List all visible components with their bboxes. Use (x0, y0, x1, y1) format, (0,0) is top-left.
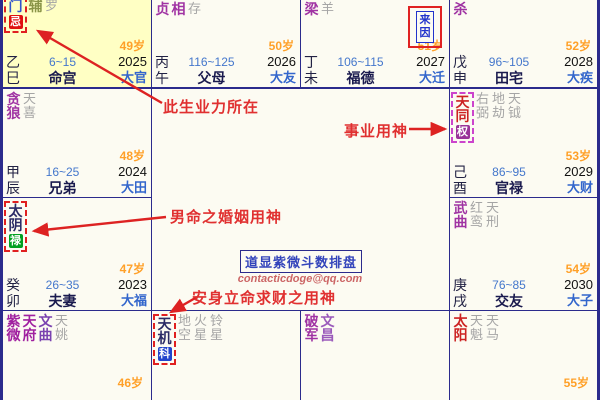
cell-meta: 47岁 癸 26~35 2023 卯 夫妻 大福 (6, 260, 147, 309)
star-name: 天刑 (485, 201, 500, 229)
age-range: 6~15 (24, 54, 101, 70)
transformation-badge: 权 (456, 125, 470, 139)
laiyin-badge: 来因 (416, 11, 434, 43)
decade-palace: 大福 (101, 293, 147, 309)
year: 2023 (101, 277, 147, 293)
star-name: 文昌 (320, 314, 335, 342)
star-group: 杀 (453, 2, 468, 16)
star-name: 天府 (22, 314, 37, 342)
star-group: 梁羊 (304, 2, 335, 16)
age-label: 53岁 (453, 147, 593, 164)
palace-cell-shen-tianzhai: 杀 52岁 戊 96~105 2028 申 田宅 大疾 (449, 0, 598, 88)
age-range: 106~115 (322, 54, 399, 70)
branch: 卯 (6, 293, 24, 309)
star-group: 门忌辅罗 (6, 0, 59, 33)
palace-cell-chou: 天机科地空火星铃星 (151, 310, 301, 400)
age-label: 52岁 (453, 37, 593, 54)
year: 2027 (399, 54, 445, 70)
palace-name: 田宅 (471, 70, 547, 86)
star-name: 武曲 (453, 201, 468, 229)
palace-cell-wu-fumu: 贞相存 50岁 丙 116~125 2026 午 父母 大友 (151, 0, 301, 88)
palace-cell-yin: 紫微天府文曲天姚 46岁 (2, 310, 152, 400)
star-name: 天马 (485, 314, 500, 342)
age-range: 96~105 (471, 54, 547, 70)
star-name: 相 (171, 2, 186, 16)
highlight-dashed-box: 太阴禄 (4, 201, 27, 252)
annotation-career: 事业用神 (344, 120, 408, 141)
palace-name: 命宫 (24, 70, 101, 86)
annotation-karma: 此生业力所在 (163, 96, 259, 117)
watermark-box: 道显紫微斗数排盘 (240, 250, 362, 273)
star-group: 天同权右弼地劫天钺 (453, 92, 522, 143)
star-group: 紫微天府文曲天姚 (6, 314, 69, 342)
stem: 丁 (304, 54, 322, 70)
stem: 甲 (6, 164, 24, 180)
star-group: 天机科地空火星铃星 (155, 314, 224, 365)
palace-name: 福德 (322, 70, 399, 86)
age-label: 47岁 (6, 260, 147, 277)
age-range: 16~25 (24, 164, 101, 180)
cell-meta: 48岁 甲 16~25 2024 辰 兄弟 大田 (6, 147, 147, 196)
annotation-wealth: 安身立命求财之用神 (192, 287, 336, 308)
cell-meta: 52岁 戊 96~105 2028 申 田宅 大疾 (453, 37, 593, 86)
chart-left-border (0, 0, 2, 400)
star-name: 贞 (155, 2, 170, 16)
palace-cell-xu-jiaoyou: 武曲红鸾天刑 54岁 庚 76~85 2030 戌 交友 大子 (449, 197, 598, 311)
palace-cell-chen-xiongdi: 贪狼天喜 48岁 甲 16~25 2024 辰 兄弟 大田 (2, 88, 152, 198)
cell-meta: 50岁 丙 116~125 2026 午 父母 大友 (155, 37, 296, 86)
ziwei-chart: 门忌辅罗 49岁 乙 6~15 2025 巳 命宫 大官 贞相存 50岁 丙 1… (0, 0, 600, 400)
highlight-dashed-box: 天机科 (153, 314, 176, 365)
cell-meta: 49岁 乙 6~15 2025 巳 命宫 大官 (6, 37, 147, 86)
age-label: 49岁 (6, 37, 147, 54)
star-name: 天钺 (507, 92, 522, 120)
star-name: 火星 (193, 314, 208, 342)
annotation-marriage: 男命之婚姻用神 (170, 206, 282, 227)
year: 2028 (547, 54, 593, 70)
star-name: 天姚 (54, 314, 69, 342)
stem: 乙 (6, 54, 24, 70)
cell-meta: 54岁 庚 76~85 2030 戌 交友 大子 (453, 260, 593, 309)
stem: 癸 (6, 277, 24, 293)
decade-palace: 大田 (101, 180, 147, 196)
palace-name: 兄弟 (24, 180, 101, 196)
transformation-badge: 禄 (9, 234, 23, 248)
age-range: 86~95 (471, 164, 547, 180)
palace-cell-wei-fude: 梁羊 来因 51岁 丁 106~115 2027 未 福德 大迁 (300, 0, 450, 88)
branch: 午 (155, 70, 173, 86)
star-group: 太阴禄 (6, 201, 27, 252)
star-name: 红鸾 (469, 201, 484, 229)
highlight-dashed-box: 天同权 (451, 92, 474, 143)
star-name: 铃星 (209, 314, 224, 342)
palace-cell-zi: 破军文昌 (300, 310, 450, 400)
age-label: 50岁 (155, 37, 296, 54)
cell-meta: 53岁 己 86~95 2029 酉 官禄 大财 (453, 147, 593, 196)
branch: 申 (453, 70, 471, 86)
star-name: 文曲 (38, 314, 53, 342)
palace-cell-hai: 太阳天魁天马 55岁 (449, 310, 598, 400)
age-range: 76~85 (471, 277, 547, 293)
branch: 辰 (6, 180, 24, 196)
star-name: 存 (187, 2, 202, 16)
star-name: 罗 (44, 0, 59, 13)
age-range: 116~125 (173, 54, 250, 70)
palace-name: 官禄 (471, 180, 547, 196)
age-label: 46岁 (118, 374, 145, 391)
palace-name: 交友 (471, 293, 547, 309)
star-name: 辅 (28, 0, 43, 13)
year: 2029 (547, 164, 593, 180)
star-name: 羊 (320, 2, 335, 16)
star-name: 地空 (177, 314, 192, 342)
palace-cell-si-ming: 门忌辅罗 49岁 乙 6~15 2025 巳 命宫 大官 (2, 0, 152, 88)
decade-palace: 大疾 (547, 70, 593, 86)
decade-palace: 大迁 (399, 70, 445, 86)
branch: 未 (304, 70, 322, 86)
decade-palace: 大财 (547, 180, 593, 196)
decade-palace: 大友 (250, 70, 296, 86)
star-name: 紫微 (6, 314, 21, 342)
highlight-dashed-box: 门忌 (4, 0, 27, 33)
age-label: 54岁 (453, 260, 593, 277)
year: 2030 (547, 277, 593, 293)
branch: 戌 (453, 293, 471, 309)
year: 2024 (101, 164, 147, 180)
laiyin-highlight-box: 来因 (408, 6, 442, 48)
star-name: 破军 (304, 314, 319, 342)
star-name: 梁 (304, 2, 319, 16)
star-name: 天喜 (22, 92, 37, 120)
star-name: 天魁 (469, 314, 484, 342)
contact-email: contacticdoge@qq.com (225, 273, 375, 285)
watermark-title: 道显紫微斗数排盘 (245, 252, 357, 271)
palace-name: 父母 (173, 70, 250, 86)
stem: 己 (453, 164, 471, 180)
year: 2026 (250, 54, 296, 70)
star-group: 破军文昌 (304, 314, 335, 342)
star-group: 贞相存 (155, 2, 202, 16)
palace-cell-mao-fuqi: 太阴禄 47岁 癸 26~35 2023 卯 夫妻 大福 (2, 197, 152, 311)
star-name: 地劫 (491, 92, 506, 120)
stem: 庚 (453, 277, 471, 293)
stem: 丙 (155, 54, 173, 70)
star-name: 右弼 (475, 92, 490, 120)
transformation-badge: 忌 (9, 15, 23, 29)
star-name: 太阳 (453, 314, 468, 342)
age-label: 48岁 (6, 147, 147, 164)
stem: 戊 (453, 54, 471, 70)
star-name: 杀 (453, 2, 468, 16)
decade-palace: 大官 (101, 70, 147, 86)
star-name: 贪狼 (6, 92, 21, 120)
branch: 巳 (6, 70, 24, 86)
decade-palace: 大子 (547, 293, 593, 309)
year: 2025 (101, 54, 147, 70)
palace-cell-you-guanlu: 天同权右弼地劫天钺 53岁 己 86~95 2029 酉 官禄 大财 (449, 88, 598, 198)
star-group: 太阳天魁天马 (453, 314, 500, 342)
transformation-badge: 科 (158, 347, 172, 361)
age-label: 55岁 (564, 374, 591, 391)
branch: 酉 (453, 180, 471, 196)
palace-name: 夫妻 (24, 293, 101, 309)
star-group: 武曲红鸾天刑 (453, 201, 500, 229)
age-range: 26~35 (24, 277, 101, 293)
star-group: 贪狼天喜 (6, 92, 37, 120)
